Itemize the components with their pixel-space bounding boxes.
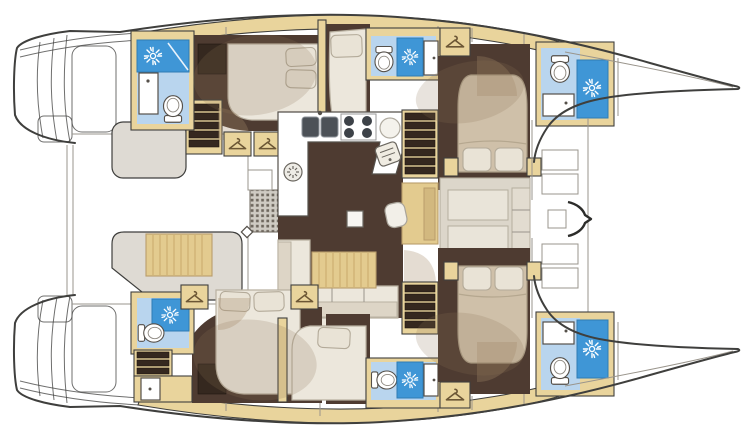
pillow bbox=[317, 327, 350, 349]
starboard-mid-heads bbox=[366, 358, 440, 408]
bed-post bbox=[444, 262, 458, 280]
cabin-wall bbox=[318, 20, 326, 120]
desk-shelf bbox=[424, 188, 435, 240]
side-table bbox=[347, 211, 363, 227]
wardrobe bbox=[181, 285, 208, 309]
wardrobe bbox=[291, 285, 318, 309]
port-aft-heads bbox=[131, 31, 194, 130]
shower-stall bbox=[397, 38, 423, 76]
door-leaf bbox=[424, 41, 438, 75]
companionway-stairs bbox=[134, 350, 172, 376]
door-leaf bbox=[424, 364, 438, 396]
stairs-forward-upper bbox=[402, 110, 438, 178]
pillow bbox=[331, 34, 363, 57]
pillow bbox=[254, 291, 285, 311]
pillow bbox=[495, 148, 523, 171]
prep-sink bbox=[380, 118, 400, 138]
wardrobe bbox=[440, 28, 470, 56]
basin-with-faucet-icon bbox=[543, 322, 574, 344]
four-burner-stove-icon bbox=[341, 114, 376, 140]
toilet-icon bbox=[138, 324, 164, 342]
port-forward-heads bbox=[536, 42, 614, 126]
pillow bbox=[463, 148, 491, 171]
wardrobe bbox=[254, 132, 281, 156]
toilet-icon bbox=[551, 358, 570, 385]
port-mid-heads bbox=[366, 28, 440, 80]
round-vent-icon bbox=[284, 163, 302, 181]
toilet-icon bbox=[372, 371, 397, 389]
basin-with-faucet-icon bbox=[543, 94, 574, 116]
wardrobe bbox=[224, 132, 251, 156]
port-mid-cabin bbox=[318, 20, 370, 124]
pillow bbox=[463, 267, 491, 290]
shower-stall bbox=[397, 362, 423, 398]
toilet-icon bbox=[551, 56, 570, 83]
faucet bbox=[318, 111, 322, 115]
floor-plan-canvas bbox=[0, 0, 750, 438]
double-sink-icon bbox=[302, 117, 319, 137]
wardrobe bbox=[440, 382, 470, 408]
shower-stall bbox=[577, 60, 608, 118]
toilet-icon bbox=[375, 47, 393, 72]
shower-stall bbox=[577, 320, 608, 378]
cockpit-table-slats bbox=[146, 234, 212, 276]
pillow bbox=[495, 267, 523, 290]
floor-grate-icon bbox=[250, 190, 280, 232]
catamaran-floor-plan bbox=[0, 0, 750, 438]
platform-step bbox=[448, 190, 508, 220]
platform-steps bbox=[512, 188, 530, 254]
toilet-icon bbox=[164, 96, 183, 123]
slatted-coffee-table bbox=[312, 252, 376, 288]
bed-post bbox=[444, 158, 458, 176]
basin-with-faucet-icon bbox=[139, 73, 158, 114]
double-sink-icon bbox=[321, 117, 338, 137]
starboard-forward-heads bbox=[536, 312, 614, 396]
